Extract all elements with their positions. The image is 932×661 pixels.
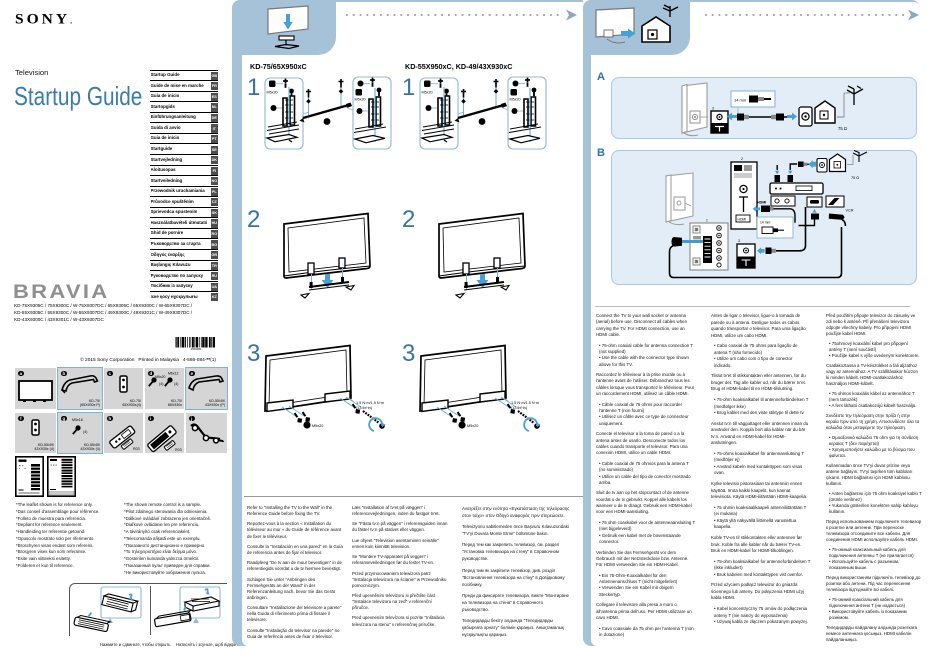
svg-text:HDMI: HDMI [757, 201, 766, 205]
svg-text:M5x20: M5x20 [510, 98, 521, 102]
svg-text:M5x20: M5x20 [312, 424, 323, 428]
svg-text:1.5 N·m/1.5 N·m: 1.5 N·m/1.5 N·m [511, 401, 539, 405]
svg-text:HDMI: HDMI [738, 218, 747, 222]
svg-text:14 mm: 14 mm [734, 98, 747, 103]
svg-text:VCR: VCR [846, 209, 854, 213]
svg-text:M5x16: M5x16 [72, 418, 83, 422]
svg-text:75 Ω: 75 Ω [838, 126, 847, 131]
svg-text:R03: R03 [175, 448, 182, 452]
svg-text:(4): (4) [174, 382, 178, 386]
svg-text:75 Ω: 75 Ω [851, 176, 859, 180]
svg-text:(4): (4) [83, 430, 87, 434]
svg-text:4566084: 4566084 [191, 347, 202, 351]
svg-text:3: 3 [738, 239, 740, 243]
svg-text:M5x20: M5x20 [467, 424, 478, 428]
svg-text:14 mm: 14 mm [760, 221, 771, 225]
svg-text:(4): (4) [159, 382, 163, 386]
svg-text:1: 1 [706, 219, 708, 223]
svg-text:M5x20: M5x20 [267, 91, 278, 95]
svg-text:1.5 N·m/1.5 N·m: 1.5 N·m/1.5 N·m [356, 401, 384, 405]
svg-text:R03: R03 [133, 447, 140, 451]
svg-text:M5x20: M5x20 [355, 98, 366, 102]
svg-text:3: 3 [712, 107, 714, 111]
svg-text:{13 lbf·in}: {13 lbf·in} [511, 406, 528, 410]
svg-text:M5x20: M5x20 [422, 91, 433, 95]
svg-text:{13 lbf·in}: {13 lbf·in} [356, 406, 373, 410]
svg-text:M6x12: M6x12 [168, 372, 179, 376]
svg-text:M5x20: M5x20 [155, 375, 166, 379]
svg-text:2: 2 [741, 157, 743, 161]
